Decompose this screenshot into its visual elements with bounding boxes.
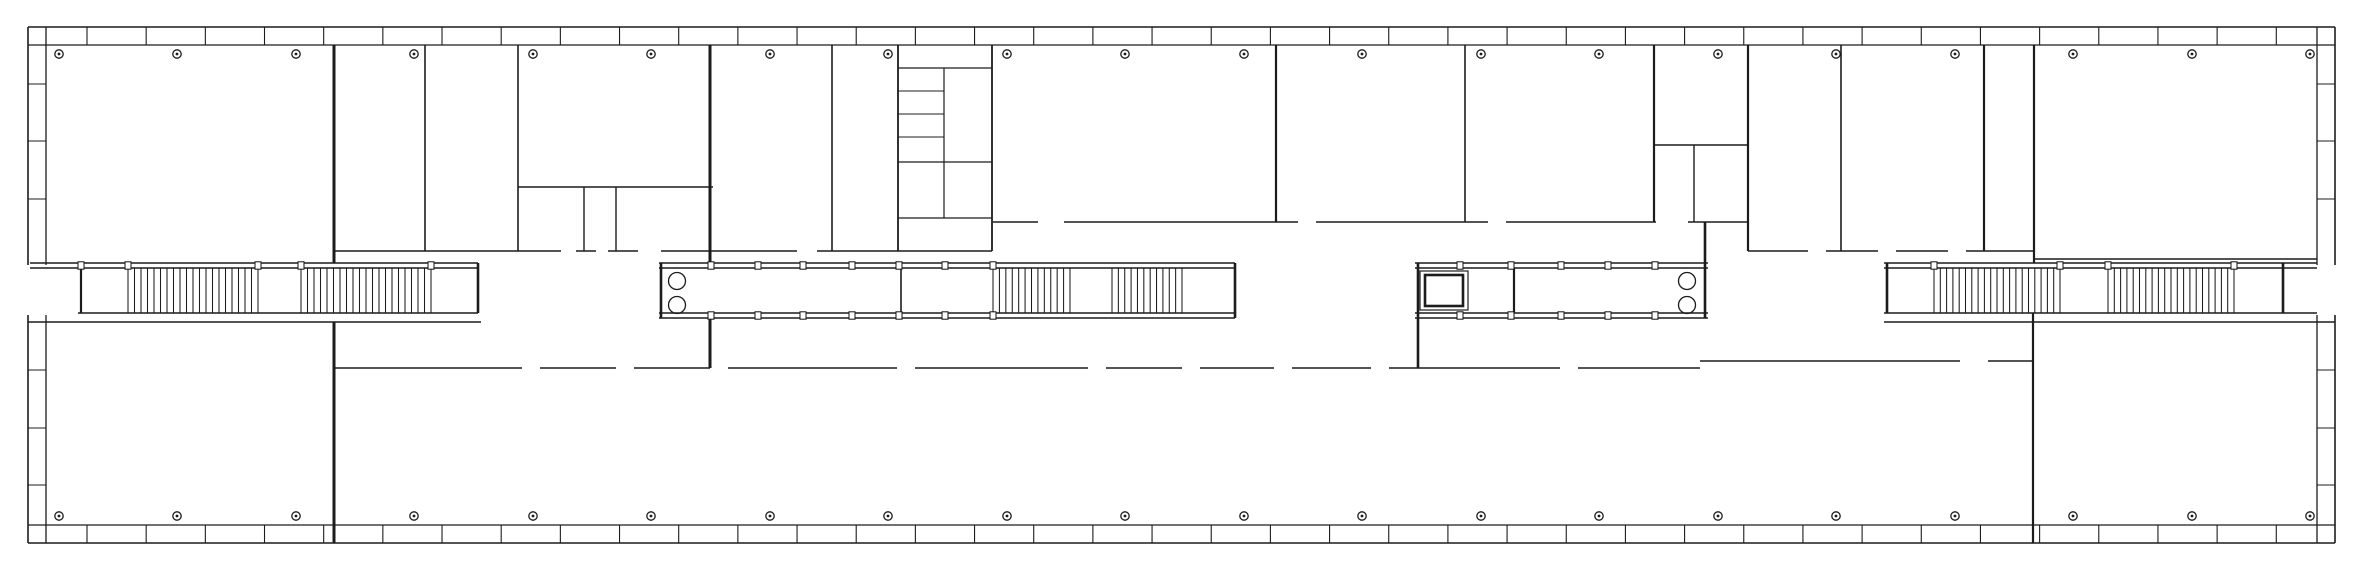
column-marker <box>766 50 774 58</box>
column-marker <box>1240 50 1248 58</box>
column-marker <box>1358 512 1366 520</box>
column-marker <box>1121 50 1129 58</box>
stair-east-run-1 <box>1934 268 2060 313</box>
column-marker <box>1714 50 1722 58</box>
column-marker <box>55 50 63 58</box>
stair-west-run-2 <box>301 268 431 313</box>
column-marker <box>2188 512 2196 520</box>
column-marker <box>884 512 892 520</box>
column-marker <box>1477 512 1485 520</box>
column-marker <box>1832 50 1840 58</box>
column-marker <box>292 50 300 58</box>
column-marker <box>1832 512 1840 520</box>
column-marker <box>1003 50 1011 58</box>
column-marker <box>173 512 181 520</box>
floor-plan-svg <box>0 0 2363 571</box>
column-marker <box>2069 50 2077 58</box>
column-marker <box>1595 512 1603 520</box>
column-marker <box>410 50 418 58</box>
column-marker <box>55 512 63 520</box>
column-marker <box>2188 50 2196 58</box>
column-marker <box>292 512 300 520</box>
column-marker <box>647 50 655 58</box>
column-marker <box>647 512 655 520</box>
column-marker <box>2306 512 2314 520</box>
column-marker <box>1595 50 1603 58</box>
column-marker <box>1358 50 1366 58</box>
stair-west-run-1 <box>128 268 258 313</box>
stair-east-run-2 <box>2108 268 2234 313</box>
column-marker <box>884 50 892 58</box>
floor-plan-canvas <box>0 0 2363 571</box>
column-marker <box>1951 512 1959 520</box>
column-marker <box>173 50 181 58</box>
column-marker <box>1121 512 1129 520</box>
column-marker <box>1714 512 1722 520</box>
column-marker <box>529 50 537 58</box>
column-marker <box>410 512 418 520</box>
column-marker <box>1240 512 1248 520</box>
column-marker <box>2069 512 2077 520</box>
column-marker <box>1003 512 1011 520</box>
column-marker <box>2306 50 2314 58</box>
column-marker <box>766 512 774 520</box>
column-marker <box>529 512 537 520</box>
column-marker <box>1951 50 1959 58</box>
floor-plan-page <box>0 0 2363 571</box>
column-marker <box>1477 50 1485 58</box>
